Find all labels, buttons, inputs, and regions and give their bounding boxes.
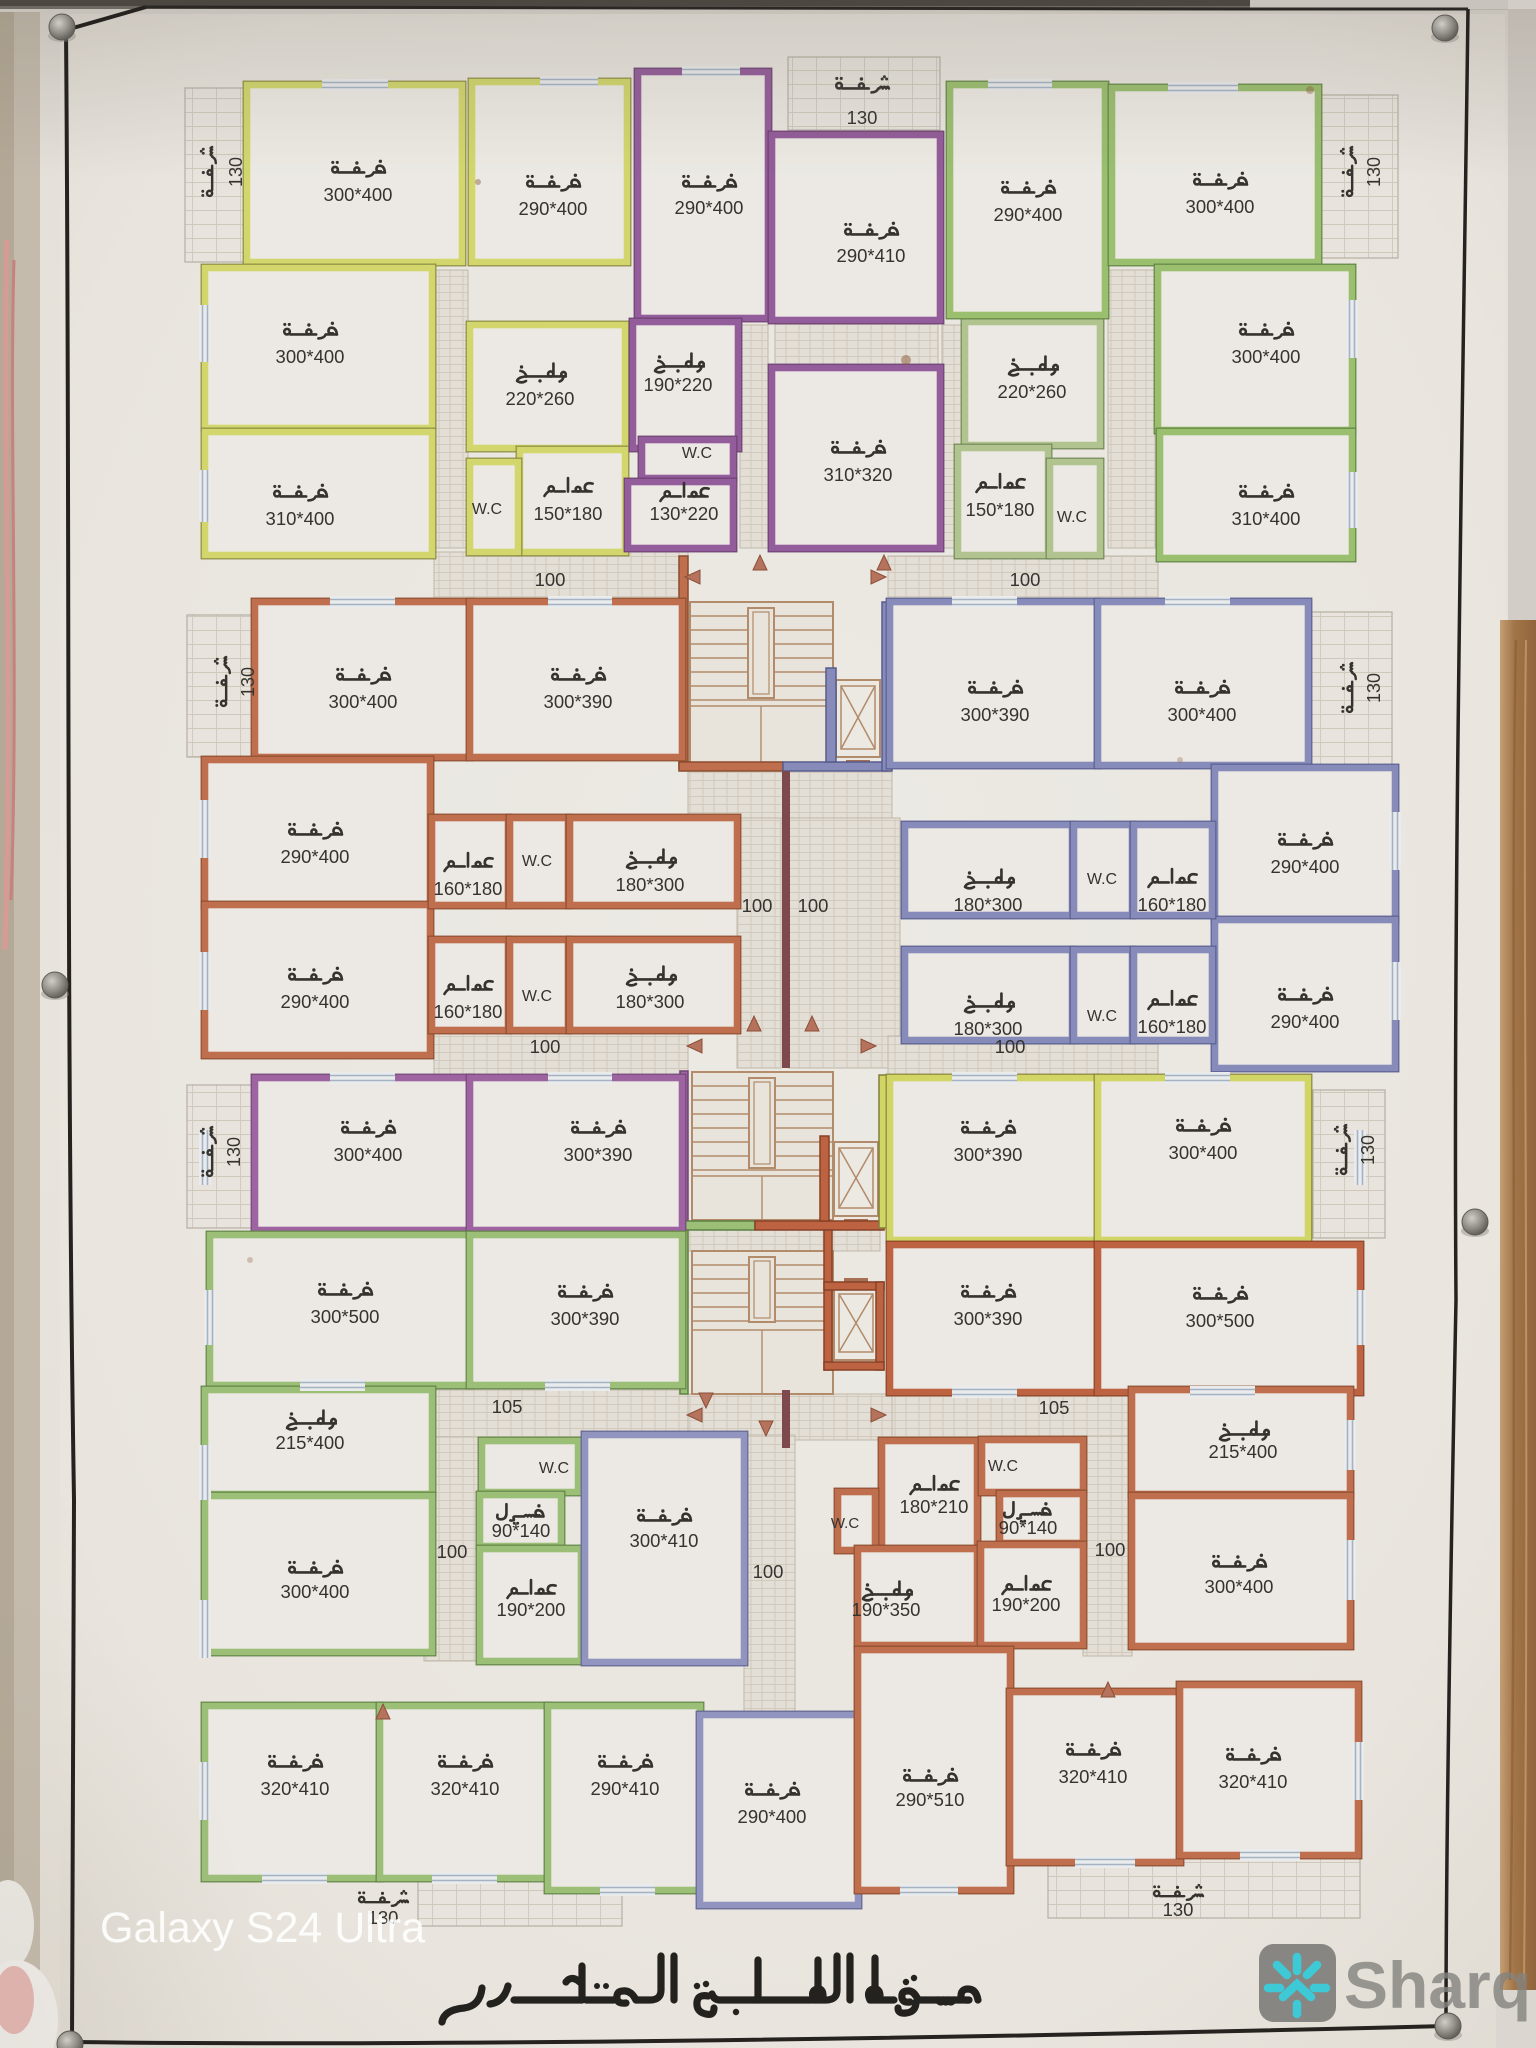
svg-text:Sharq: Sharq [1344,1948,1531,2022]
svg-text:Galaxy S24 Ultra: Galaxy S24 Ultra [100,1904,425,1952]
